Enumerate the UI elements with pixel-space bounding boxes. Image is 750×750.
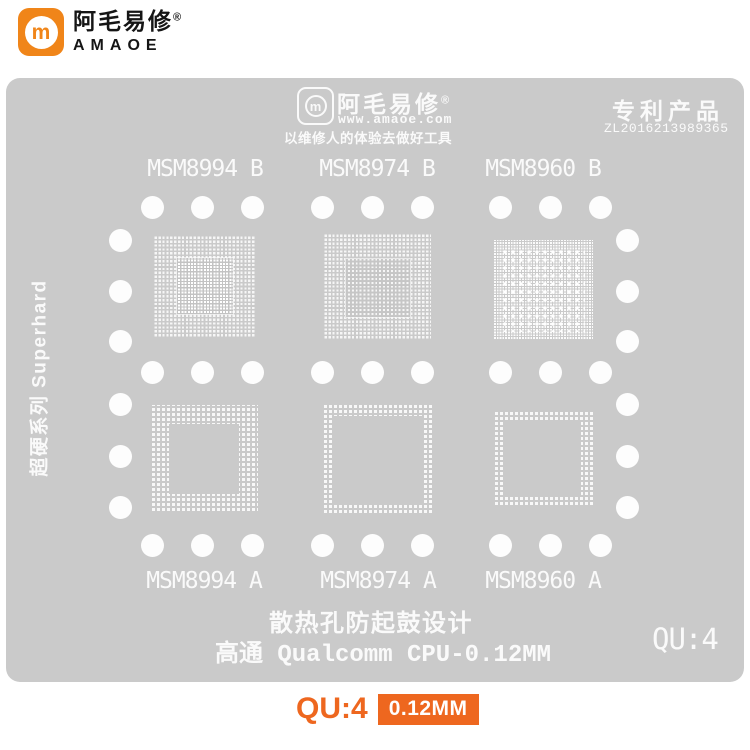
positioning-hole (616, 496, 639, 519)
bga-grid-inner-region (345, 258, 411, 318)
chip-label-msm8960-b: MSM8960 B (458, 156, 628, 182)
grid-cutout-center (169, 424, 239, 494)
positioning-hole (141, 196, 164, 219)
patent-number: ZL2016213989365 (604, 121, 729, 136)
thickness-badge: 0.12MM (378, 694, 479, 725)
caption-model-code: QU:4 (296, 692, 368, 726)
positioning-hole (616, 280, 639, 303)
positioning-hole (109, 280, 132, 303)
positioning-hole (411, 196, 434, 219)
positioning-hole (616, 229, 639, 252)
positioning-hole (489, 196, 512, 219)
positioning-hole (241, 534, 264, 557)
positioning-hole (539, 534, 562, 557)
positioning-hole (241, 196, 264, 219)
logo-monogram: m (25, 16, 58, 49)
positioning-hole (109, 229, 132, 252)
positioning-hole (311, 361, 334, 384)
chip-label-msm8974-a: MSM8974 A (293, 568, 463, 594)
product-image: m 阿毛易修® AMAOE m 阿毛易修® www.amaoe.com 以维修人… (0, 0, 750, 750)
bga-grid-msm8994-b (153, 235, 256, 338)
positioning-hole (311, 534, 334, 557)
positioning-hole (489, 534, 512, 557)
brand-header: m 阿毛易修® AMAOE (18, 8, 183, 56)
bga-grid-inner-region (501, 248, 585, 332)
bga-grid-msm8974-b (323, 234, 431, 340)
positioning-hole (361, 196, 384, 219)
brand-text: 阿毛易修® AMAOE (73, 9, 183, 54)
positioning-hole (616, 445, 639, 468)
positioning-hole (411, 361, 434, 384)
bga-grid-msm8960-a (493, 410, 593, 507)
brand-name-en: AMAOE (73, 37, 183, 55)
grid-cutout-center (505, 422, 581, 495)
positioning-hole (616, 393, 639, 416)
positioning-hole (191, 196, 214, 219)
positioning-hole (361, 361, 384, 384)
registered-mark: ® (441, 94, 452, 106)
brand-name-cn: 阿毛易修® (73, 9, 183, 34)
product-line: 高通 Qualcomm CPU-0.12MM (215, 633, 551, 669)
caption: QU:4 0.12MM (296, 692, 479, 726)
bga-grid-inner-region (177, 258, 233, 314)
positioning-hole (109, 330, 132, 353)
logo-monogram: m (305, 95, 327, 117)
positioning-hole (191, 361, 214, 384)
positioning-hole (311, 196, 334, 219)
bga-grid-msm8974-a (322, 405, 433, 515)
positioning-hole (539, 196, 562, 219)
positioning-hole (141, 534, 164, 557)
positioning-hole (539, 361, 562, 384)
stencil-logo-slogan: 以维修人的体验去做好工具 (284, 127, 452, 147)
chip-label-msm8994-a: MSM8994 A (119, 568, 289, 594)
positioning-hole (616, 330, 639, 353)
chip-label-msm8974-b: MSM8974 B (292, 156, 462, 182)
bga-grid-msm8960-b (493, 240, 593, 340)
positioning-hole (109, 496, 132, 519)
positioning-hole (109, 393, 132, 416)
amaoe-stencil-logo-icon: m (297, 87, 334, 125)
positioning-hole (361, 534, 384, 557)
grid-cutout-center (333, 416, 422, 504)
bga-grid-msm8994-a (150, 405, 258, 513)
positioning-hole (589, 196, 612, 219)
stencil-logo-website: www.amaoe.com (338, 112, 452, 127)
positioning-hole (589, 361, 612, 384)
positioning-hole (109, 445, 132, 468)
positioning-hole (241, 361, 264, 384)
positioning-hole (589, 534, 612, 557)
chip-label-msm8960-a: MSM8960 A (458, 568, 628, 594)
positioning-hole (411, 534, 434, 557)
registered-mark: ® (173, 12, 183, 24)
positioning-hole (141, 361, 164, 384)
amaoe-logo-icon: m (18, 8, 64, 56)
plate-model-code: QU:4 (652, 622, 718, 656)
positioning-hole (191, 534, 214, 557)
series-side-label: 超硬系列 Superhard (25, 279, 52, 476)
positioning-hole (489, 361, 512, 384)
chip-label-msm8994-b: MSM8994 B (120, 156, 290, 182)
